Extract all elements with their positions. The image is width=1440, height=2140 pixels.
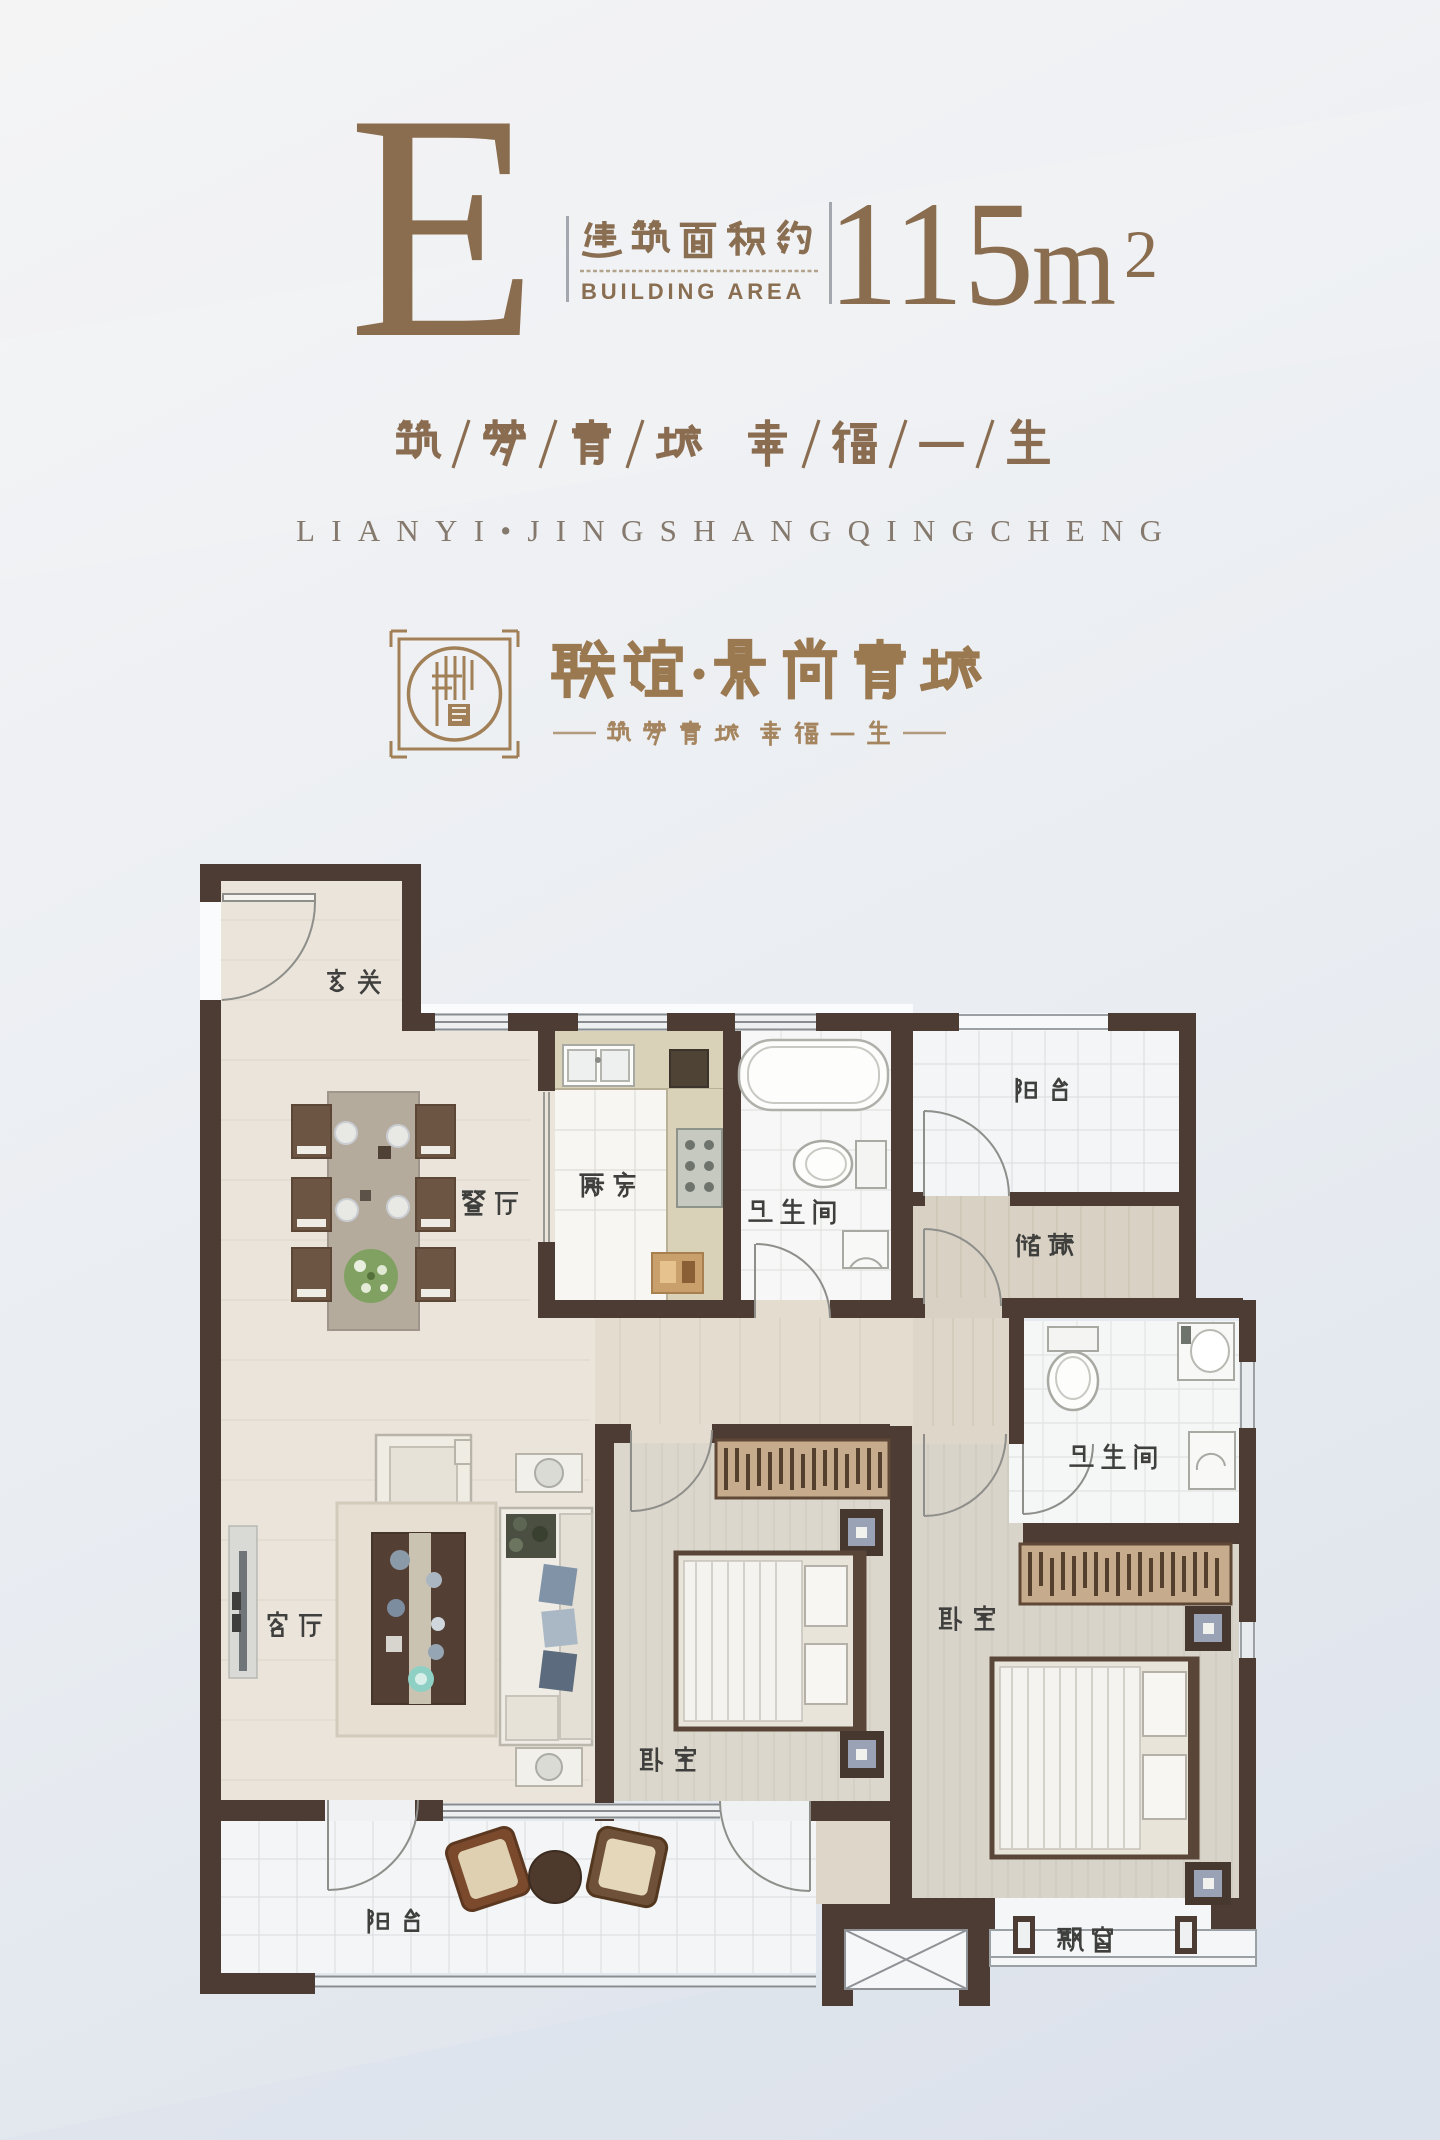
svg-text:m: m: [1032, 197, 1116, 330]
svg-text:E: E: [348, 47, 538, 405]
svg-text:LIANYI•JINGSHANGQINGCHENG: LIANYI•JINGSHANGQINGCHENG: [296, 513, 1162, 548]
svg-text:BUILDING AREA: BUILDING AREA: [581, 279, 805, 304]
svg-text:2: 2: [1124, 216, 1158, 292]
svg-text:115: 115: [828, 171, 1034, 337]
